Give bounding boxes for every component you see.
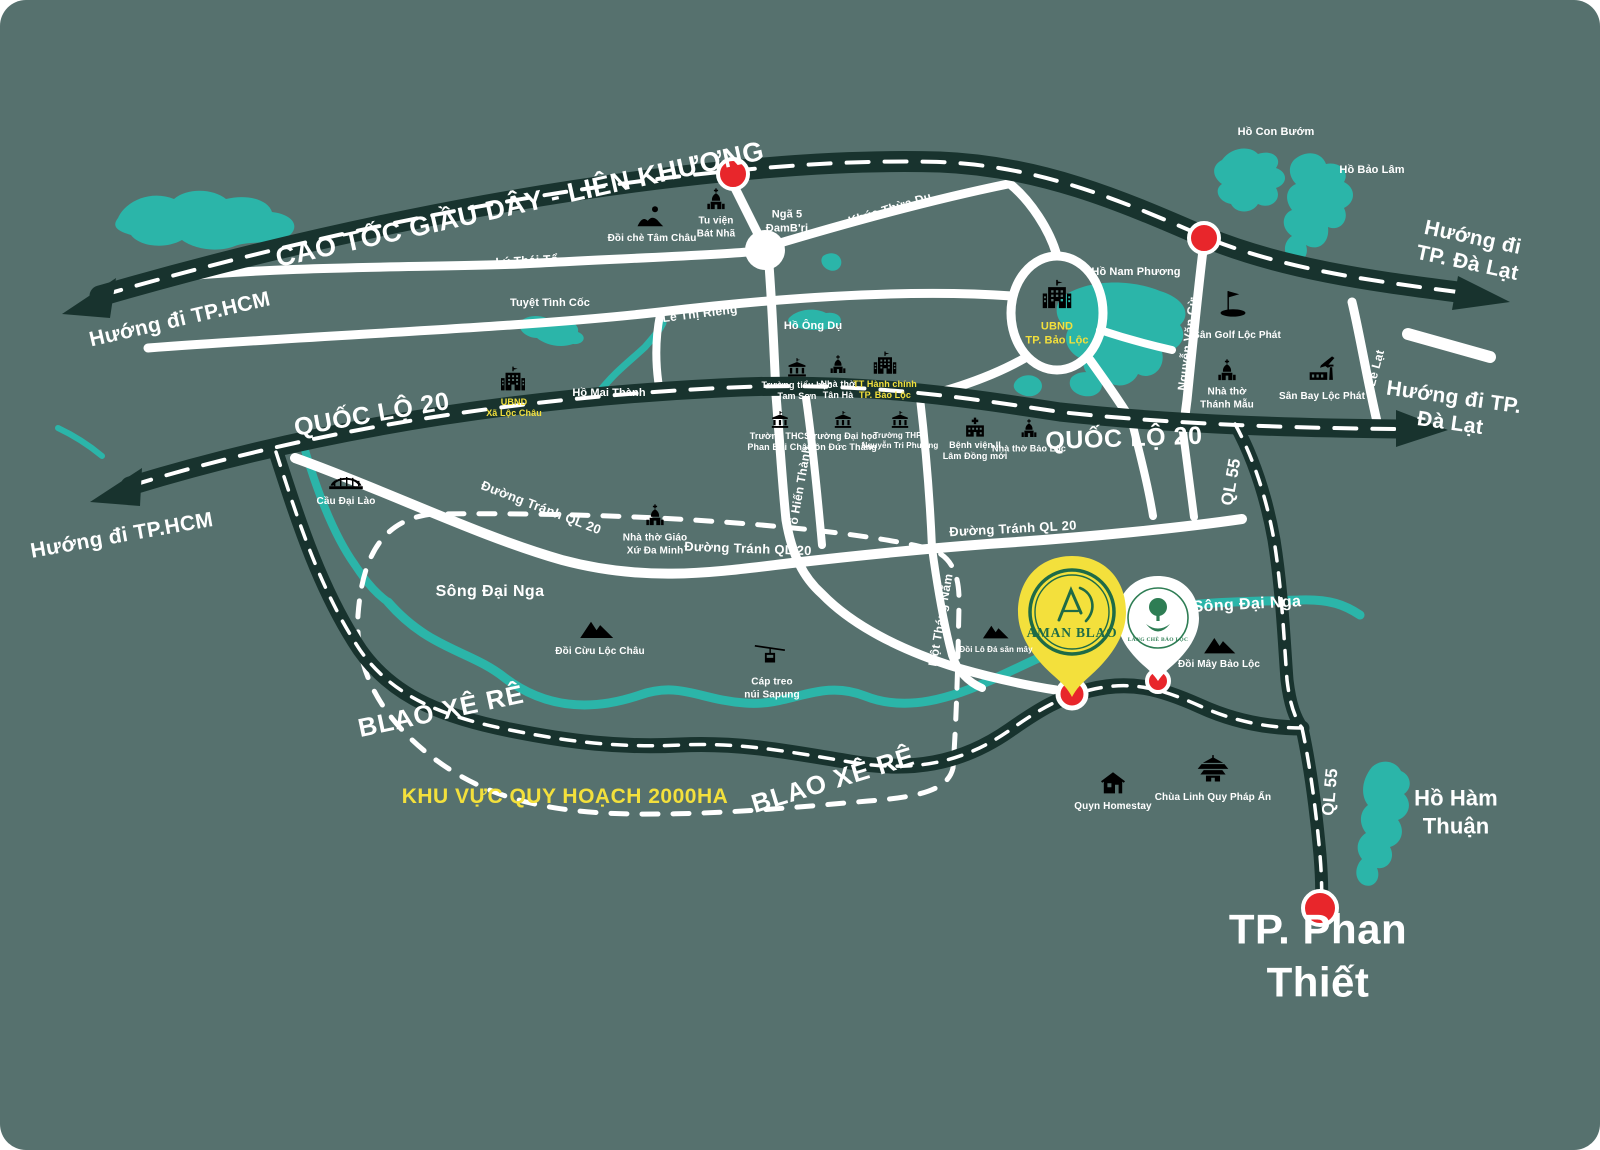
poi-label-nha-tho-da-minh: Nhà thờ Giáo Xứ Đa Minh xyxy=(623,533,687,558)
poi-label-san-bay-loc-phat: Sân Bay Lộc Phát xyxy=(1279,391,1365,404)
poi-label-cau-dai-lao: Cầu Đại Lào xyxy=(317,496,376,509)
poi-label-tu-vien-bat-nha: Tu viện Bát Nhã xyxy=(697,216,735,241)
street-oval-spur-north xyxy=(1010,184,1057,256)
label-ql20-east: QUỐC LỘ 20 xyxy=(1045,421,1203,458)
nga5-junction-circle xyxy=(745,230,785,270)
stream-far-left xyxy=(58,428,102,456)
poi-label-cap-treo-sapung: Cáp treo núi Sapung xyxy=(744,677,799,702)
pin-label-lang-che-bao-loc[interactable]: LÀNG CHÈ BẢO LỘC xyxy=(1128,637,1189,643)
water-label-ho-ong-du: Hồ Ông Dụ xyxy=(784,320,842,334)
church-icon xyxy=(702,187,730,215)
poi-label-truong-thpt-ntp: Trường THPT Nguyễn Tri Phương xyxy=(862,431,939,451)
poi-label-chua-linh-quy: Chùa Linh Quy Pháp Ấn xyxy=(1155,792,1272,805)
water-label-ho-con-buom: Hồ Con Bướm xyxy=(1238,126,1315,140)
poi-label-tt-hanh-chinh: TT Hành chính TP. Bảo Lộc xyxy=(853,379,917,402)
pagoda-icon xyxy=(1192,753,1234,789)
pin-label-aman-blao[interactable]: AMAN BLAO xyxy=(1027,625,1118,641)
hospital-icon xyxy=(961,416,989,442)
water-label-tuyet-tinh-coc: Tuyệt Tình Cốc xyxy=(510,297,590,311)
road-ql55-upper xyxy=(1235,424,1302,728)
poi-label-ubnd-xa-loc-chau: UBND Xã Lộc Châu xyxy=(486,397,542,420)
street-top-right-diagonal xyxy=(1408,334,1490,357)
church-icon xyxy=(826,354,850,378)
pin-lang-che-bao-loc[interactable] xyxy=(1117,576,1199,692)
tea-hill-icon xyxy=(634,203,668,233)
water-label-song-dai-nga-west: Sông Đại Nga xyxy=(436,582,545,602)
golf-flag-icon xyxy=(1216,288,1250,322)
church-icon xyxy=(641,503,669,531)
poi-label-doi-lo-da: Đồi Lô Đá săn mây xyxy=(959,645,1032,655)
map-canvas: CAO TỐC GIẦU DÂY - LIÊN KHƯƠNG Hướng đi … xyxy=(0,0,1600,1150)
water-label-ho-ham-thuan: Hồ Hàm Thuận xyxy=(1384,785,1528,840)
label-ql55-bottom: QL 55 xyxy=(1317,767,1342,816)
poi-label-san-golf-loc-phat: Sân Golf Lộc Phát xyxy=(1193,330,1281,343)
poi-label-nha-tho-bao-loc: Nhà thờ Bảo Lộc xyxy=(992,443,1066,454)
house-icon xyxy=(1097,768,1129,800)
poi-label-ubnd-tp-bao-loc: UBND TP. Bảo Lộc xyxy=(1025,320,1088,348)
city-hall-icon xyxy=(497,365,529,397)
poi-label-doi-may-bao-loc: Đồi Mây Bảo Lộc xyxy=(1178,659,1260,672)
water-label-ho-nam-phuong: Hồ Nam Phương xyxy=(1091,266,1180,280)
lake-small-center xyxy=(821,253,841,271)
arrow-hcm-top xyxy=(62,278,116,318)
mountain-icon xyxy=(1200,625,1240,659)
poi-label-nha-tho-thanh-mau: Nhà thờ Thánh Mẫu xyxy=(1200,387,1254,412)
city-hall-icon xyxy=(1038,278,1076,316)
bridge-icon xyxy=(324,460,368,498)
street-label-nga5-dambri: Ngã 5 ĐamB'ri xyxy=(766,208,808,236)
cable-car-icon xyxy=(753,639,787,673)
poi-label-doi-cuu-loc-chau: Đồi Cừu Lộc Châu xyxy=(555,646,644,659)
water-label-ho-mai-thanh: Hồ Mai Thành xyxy=(572,387,645,401)
label-tp-phan-thiet: TP. Phan Thiết xyxy=(1177,904,1459,1009)
lake-ho-con-buom xyxy=(1214,148,1285,211)
school-icon xyxy=(888,409,912,433)
poi-label-truong-thcs-pbc: Trường THCS Phan Bội Châu xyxy=(747,431,812,454)
poi-label-doi-che-tam-chau: Đồi chè Tâm Châu xyxy=(608,233,697,246)
lake-pond-a xyxy=(1014,375,1042,396)
poi-label-nha-tho-tan-ha: Nhà thờ Tân Hà xyxy=(820,379,855,402)
airport-icon xyxy=(1303,353,1339,387)
church-icon xyxy=(1213,358,1241,386)
school-icon xyxy=(784,356,810,382)
street-mot-thang-nam-upper xyxy=(920,398,932,548)
street-mai-thanh-link xyxy=(656,315,660,393)
road-ql55-lower xyxy=(1302,728,1322,906)
school-icon xyxy=(768,409,792,433)
water-label-ho-bao-lam: Hồ Bảo Lâm xyxy=(1339,164,1404,178)
mountain-icon xyxy=(980,615,1012,643)
poi-label-quyn-homestay: Quyn Homestay xyxy=(1074,801,1151,814)
mountain-icon xyxy=(575,608,619,644)
church-icon xyxy=(1017,418,1041,442)
school-icon xyxy=(831,409,855,433)
marker-cao-toc-east[interactable] xyxy=(1189,223,1219,253)
arrow-hcm-mid xyxy=(90,468,142,506)
admin-center-icon xyxy=(870,350,900,380)
label-planning-area: KHU VỰC QUY HOẠCH 2000HA xyxy=(402,784,729,810)
